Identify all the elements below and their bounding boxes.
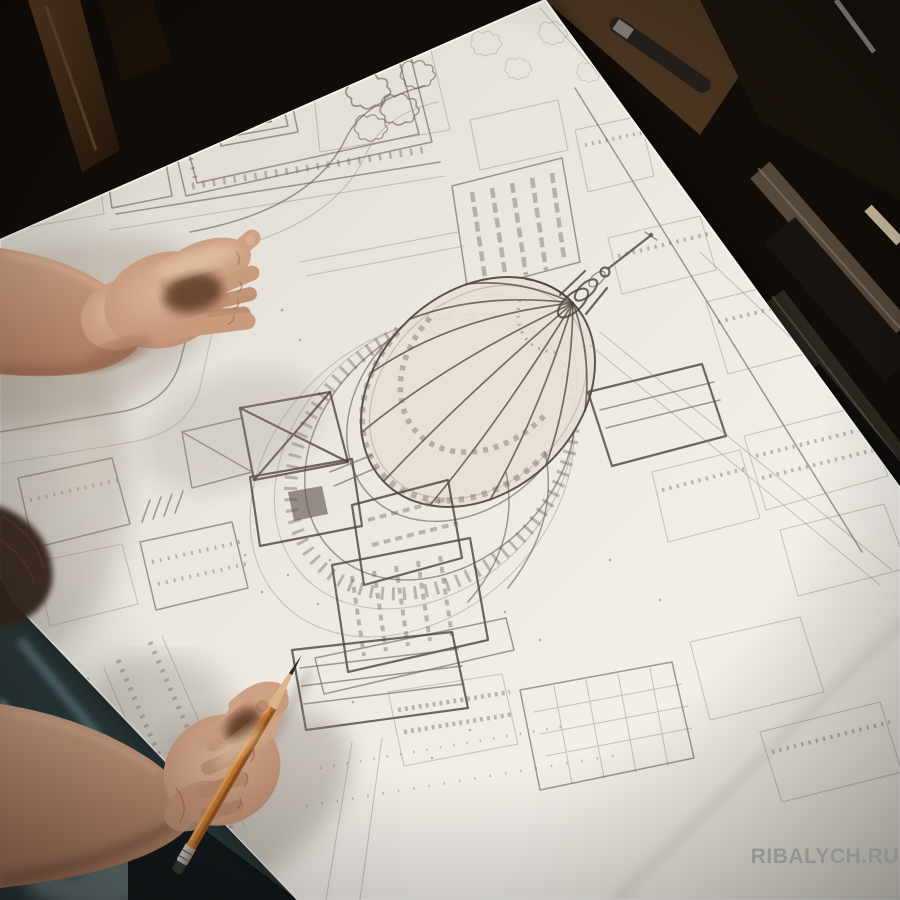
vignette (0, 0, 900, 900)
watermark: RIBALYCH.RU (743, 845, 899, 869)
photo-svg (0, 0, 900, 900)
photo-canvas: RIBALYCH.RU (0, 0, 900, 900)
